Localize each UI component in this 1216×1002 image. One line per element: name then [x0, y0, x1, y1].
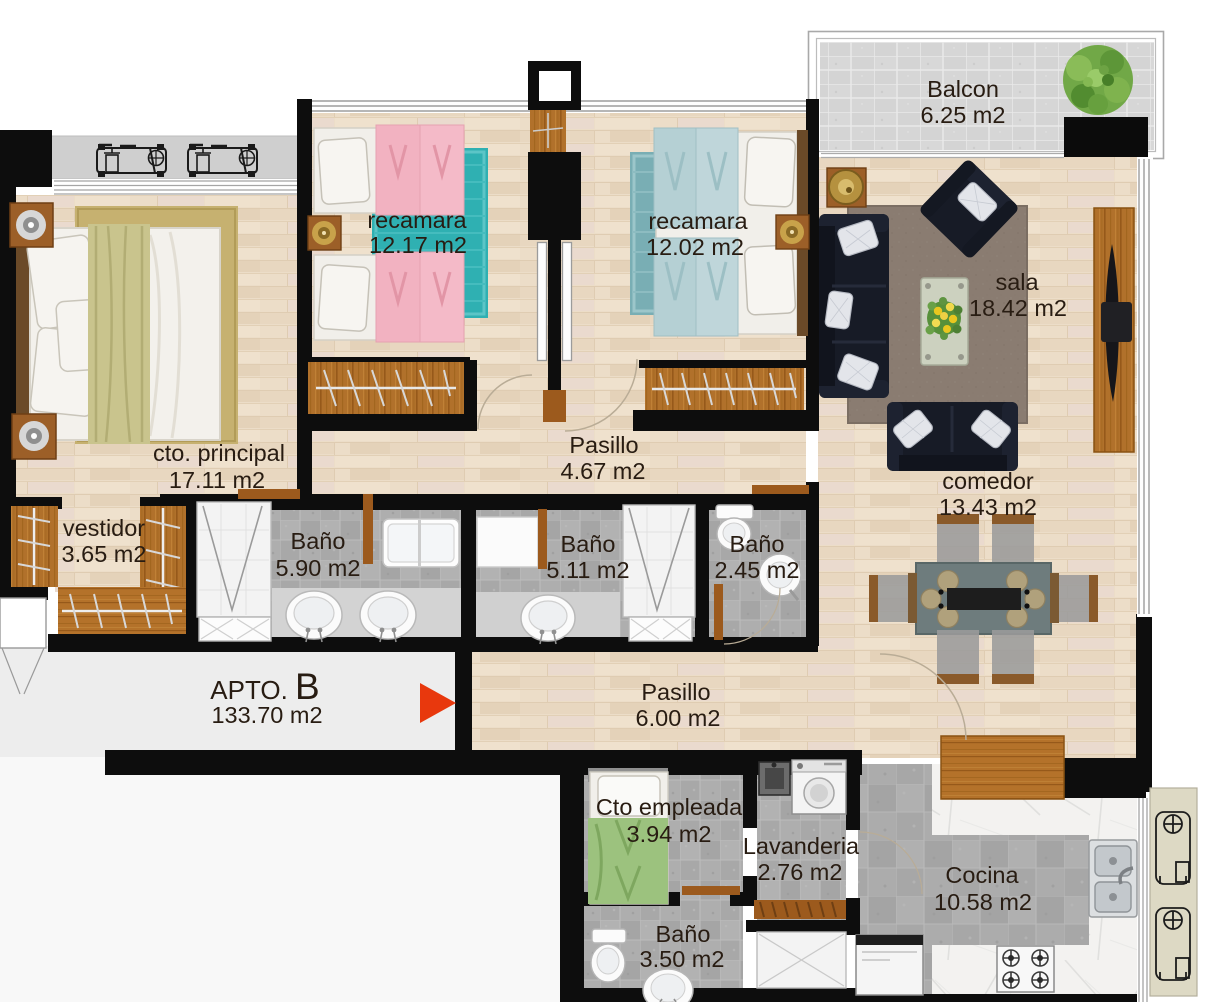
- svg-text:Baño: Baño: [656, 921, 711, 947]
- svg-text:5.11 m2: 5.11 m2: [546, 557, 629, 583]
- svg-text:5.90 m2: 5.90 m2: [276, 555, 361, 581]
- svg-text:2.76 m2: 2.76 m2: [758, 859, 843, 885]
- svg-text:6.25 m2: 6.25 m2: [921, 102, 1006, 128]
- svg-text:3.94 m2: 3.94 m2: [627, 821, 712, 847]
- svg-text:Baño: Baño: [291, 528, 346, 554]
- svg-text:Baño: Baño: [730, 531, 785, 557]
- svg-text:133.70 m2: 133.70 m2: [211, 702, 322, 728]
- svg-text:Baño: Baño: [561, 531, 616, 557]
- svg-text:10.58 m2: 10.58 m2: [934, 889, 1032, 915]
- svg-text:18.42 m2: 18.42 m2: [969, 295, 1067, 321]
- svg-text:recamara: recamara: [648, 208, 748, 234]
- svg-text:2.45 m2: 2.45 m2: [715, 557, 800, 583]
- svg-text:Cocina: Cocina: [945, 862, 1019, 888]
- svg-text:Pasillo: Pasillo: [569, 432, 638, 458]
- svg-text:12.17 m2: 12.17 m2: [369, 232, 467, 258]
- svg-text:17.11 m2: 17.11 m2: [169, 467, 265, 493]
- svg-text:Balcon: Balcon: [927, 76, 999, 102]
- svg-text:6.00 m2: 6.00 m2: [636, 705, 721, 731]
- svg-text:13.43 m2: 13.43 m2: [939, 494, 1037, 520]
- svg-text:3.50 m2: 3.50 m2: [640, 946, 725, 972]
- svg-text:Lavanderia: Lavanderia: [743, 833, 860, 859]
- svg-text:12.02 m2: 12.02 m2: [646, 234, 744, 260]
- svg-text:Pasillo: Pasillo: [641, 679, 710, 705]
- svg-text:vestidor: vestidor: [63, 515, 145, 541]
- svg-text:cto. principal: cto. principal: [153, 440, 285, 466]
- svg-text:sala: sala: [995, 269, 1039, 295]
- svg-text:recamara: recamara: [367, 207, 467, 233]
- svg-text:comedor: comedor: [942, 468, 1034, 494]
- svg-text:4.67 m2: 4.67 m2: [561, 458, 646, 484]
- svg-text:3.65 m2: 3.65 m2: [62, 541, 147, 567]
- svg-text:Cto empleada: Cto empleada: [596, 794, 743, 820]
